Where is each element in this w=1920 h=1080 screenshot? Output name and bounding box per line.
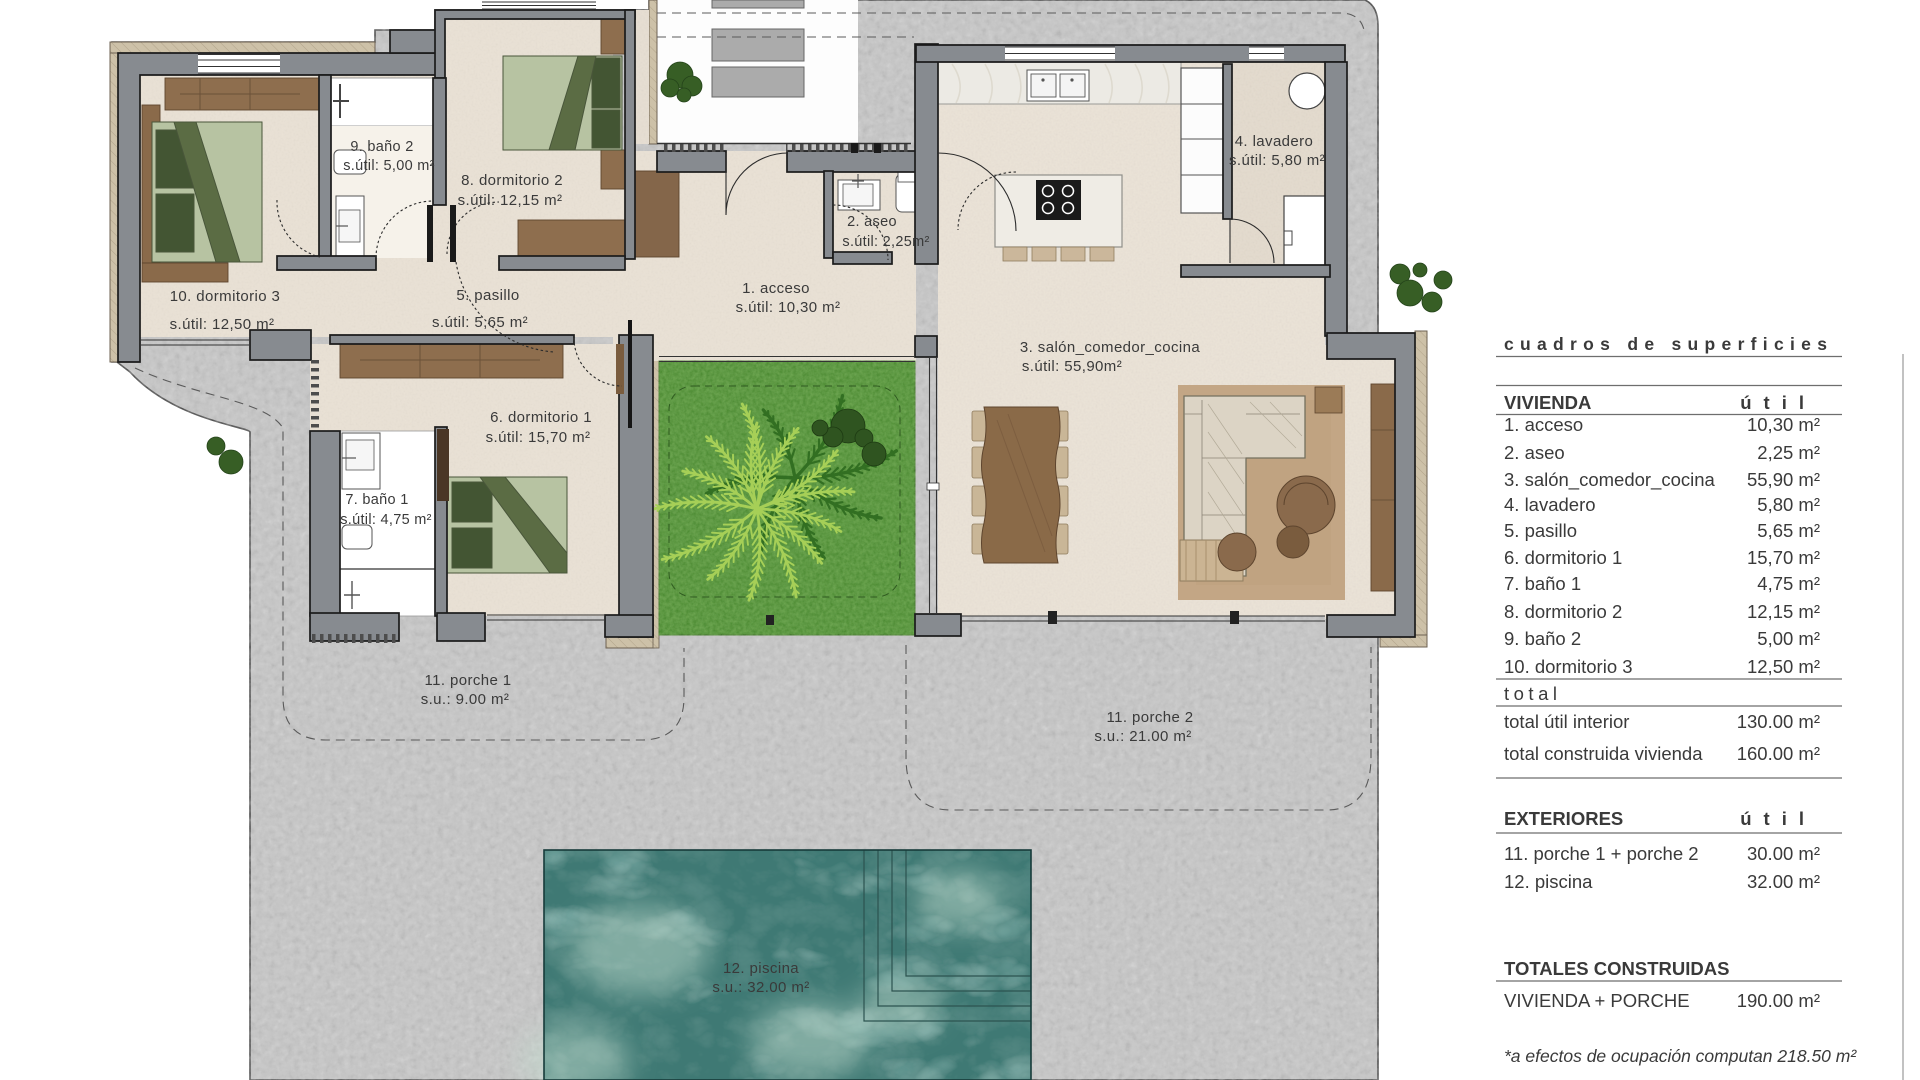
svg-text:3. salón_comedor_cocina: 3. salón_comedor_cocina <box>1504 469 1716 491</box>
svg-text:s.útil: 5,00 m²: s.útil: 5,00 m² <box>343 158 435 174</box>
svg-text:160.00 m²: 160.00 m² <box>1737 743 1820 764</box>
svg-text:s.útil: 12,15 m²: s.útil: 12,15 m² <box>458 192 563 209</box>
svg-text:cuadros de superficies: cuadros de superficies <box>1504 334 1833 354</box>
svg-text:55,90 m²: 55,90 m² <box>1747 469 1820 490</box>
svg-text:s.u.: 32.00 m²: s.u.: 32.00 m² <box>712 979 809 996</box>
svg-text:10. dormitorio 3: 10. dormitorio 3 <box>170 288 281 305</box>
svg-text:7. baño 1: 7. baño 1 <box>345 492 408 508</box>
svg-text:9. baño 2: 9. baño 2 <box>1504 628 1581 649</box>
svg-text:TOTALES CONSTRUIDAS: TOTALES CONSTRUIDAS <box>1504 958 1729 979</box>
svg-text:30.00 m²: 30.00 m² <box>1747 843 1820 864</box>
svg-text:4. lavadero: 4. lavadero <box>1235 133 1314 150</box>
svg-text:s.útil: 4,75 m²: s.útil: 4,75 m² <box>340 512 432 528</box>
svg-text:6. dormitorio 1: 6. dormitorio 1 <box>1504 547 1622 568</box>
svg-text:10. dormitorio 3: 10. dormitorio 3 <box>1504 656 1633 677</box>
svg-text:7. baño 1: 7. baño 1 <box>1504 573 1581 594</box>
svg-text:8. dormitorio 2: 8. dormitorio 2 <box>1504 601 1622 622</box>
svg-text:11. porche 1: 11. porche 1 <box>424 672 511 689</box>
svg-text:s.útil: 12,50 m²: s.útil: 12,50 m² <box>170 316 275 333</box>
svg-text:3. salón_comedor_cocina: 3. salón_comedor_cocina <box>1020 339 1200 356</box>
svg-text:VIVIENDA: VIVIENDA <box>1504 392 1591 413</box>
svg-text:190.00 m²: 190.00 m² <box>1737 990 1820 1011</box>
svg-text:total construida vivienda: total construida vivienda <box>1504 743 1703 764</box>
svg-text:s.útil: 10,30 m²: s.útil: 10,30 m² <box>736 299 841 316</box>
svg-text:s.u.: 21.00 m²: s.u.: 21.00 m² <box>1094 728 1191 745</box>
svg-text:s.útil: 55,90m²: s.útil: 55,90m² <box>1022 358 1122 375</box>
svg-text:11. porche 2: 11. porche 2 <box>1106 709 1193 726</box>
svg-text:11. porche 1 + porche 2: 11. porche 1 + porche 2 <box>1504 843 1699 864</box>
svg-text:s.u.: 9.00 m²: s.u.: 9.00 m² <box>421 691 510 708</box>
svg-text:VIVIENDA + PORCHE: VIVIENDA + PORCHE <box>1504 990 1690 1011</box>
svg-text:15,70 m²: 15,70 m² <box>1747 547 1820 568</box>
svg-text:*a efectos de ocupación comput: *a efectos de ocupación computan 218.50 … <box>1504 1046 1857 1066</box>
svg-text:5,65 m²: 5,65 m² <box>1757 520 1820 541</box>
svg-text:1. acceso: 1. acceso <box>742 280 810 297</box>
svg-text:1. acceso: 1. acceso <box>1504 414 1583 435</box>
svg-text:4. lavadero: 4. lavadero <box>1504 494 1596 515</box>
svg-text:útil: útil <box>1740 808 1816 829</box>
svg-text:s.útil: 5,65 m²: s.útil: 5,65 m² <box>432 314 528 331</box>
svg-text:12,15 m²: 12,15 m² <box>1747 601 1820 622</box>
svg-text:130.00 m²: 130.00 m² <box>1737 711 1820 732</box>
svg-text:total: total <box>1504 683 1561 704</box>
svg-text:8. dormitorio 2: 8. dormitorio 2 <box>461 172 563 189</box>
svg-text:total útil interior: total útil interior <box>1504 711 1629 732</box>
svg-text:s.útil: 5,80 m²: s.útil: 5,80 m² <box>1229 152 1325 169</box>
svg-text:10,30 m²: 10,30 m² <box>1747 414 1820 435</box>
svg-text:6. dormitorio 1: 6. dormitorio 1 <box>490 409 592 426</box>
svg-text:12. piscina: 12. piscina <box>1504 871 1593 892</box>
svg-text:12,50 m²: 12,50 m² <box>1747 656 1820 677</box>
svg-text:5,80 m²: 5,80 m² <box>1757 494 1820 515</box>
svg-text:9. baño 2: 9. baño 2 <box>350 139 413 155</box>
svg-text:5,00 m²: 5,00 m² <box>1757 628 1820 649</box>
svg-text:EXTERIORES: EXTERIORES <box>1504 808 1623 829</box>
svg-text:2. aseo: 2. aseo <box>847 214 897 230</box>
svg-text:32.00 m²: 32.00 m² <box>1747 871 1820 892</box>
svg-text:s.útil: 15,70 m²: s.útil: 15,70 m² <box>486 429 591 446</box>
svg-text:4,75 m²: 4,75 m² <box>1757 573 1820 594</box>
svg-text:2,25 m²: 2,25 m² <box>1757 442 1820 463</box>
svg-text:12. piscina: 12. piscina <box>723 960 799 977</box>
svg-text:s.útil: 2,25m²: s.útil: 2,25m² <box>842 234 929 250</box>
svg-text:5. pasillo: 5. pasillo <box>456 287 519 304</box>
svg-text:5. pasillo: 5. pasillo <box>1504 520 1577 541</box>
svg-text:2. aseo: 2. aseo <box>1504 442 1565 463</box>
svg-text:útil: útil <box>1740 392 1816 413</box>
